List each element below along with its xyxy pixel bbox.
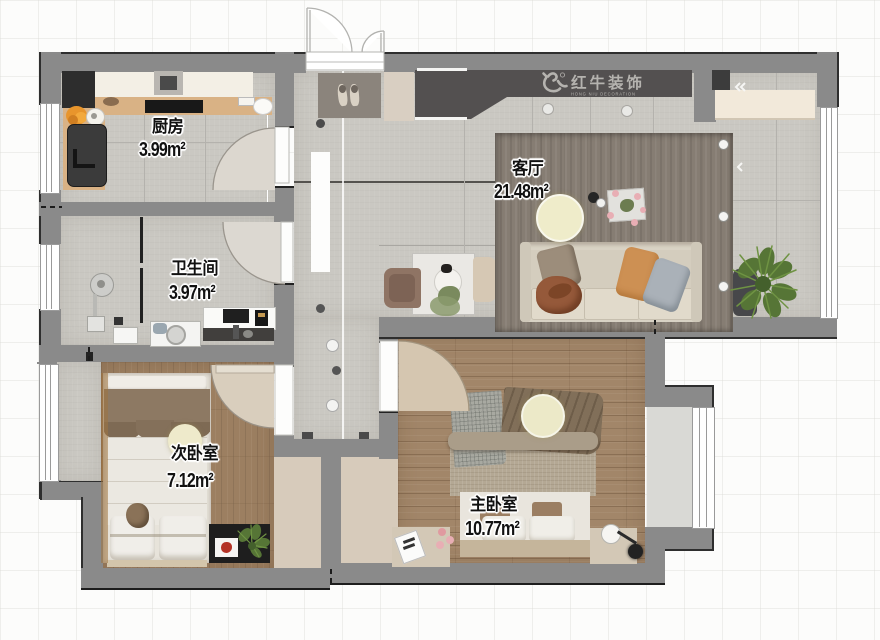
svg-text:红牛装饰: 红牛装饰	[571, 73, 645, 92]
svg-text:HONG NIU DECORATION: HONG NIU DECORATION	[571, 92, 636, 97]
